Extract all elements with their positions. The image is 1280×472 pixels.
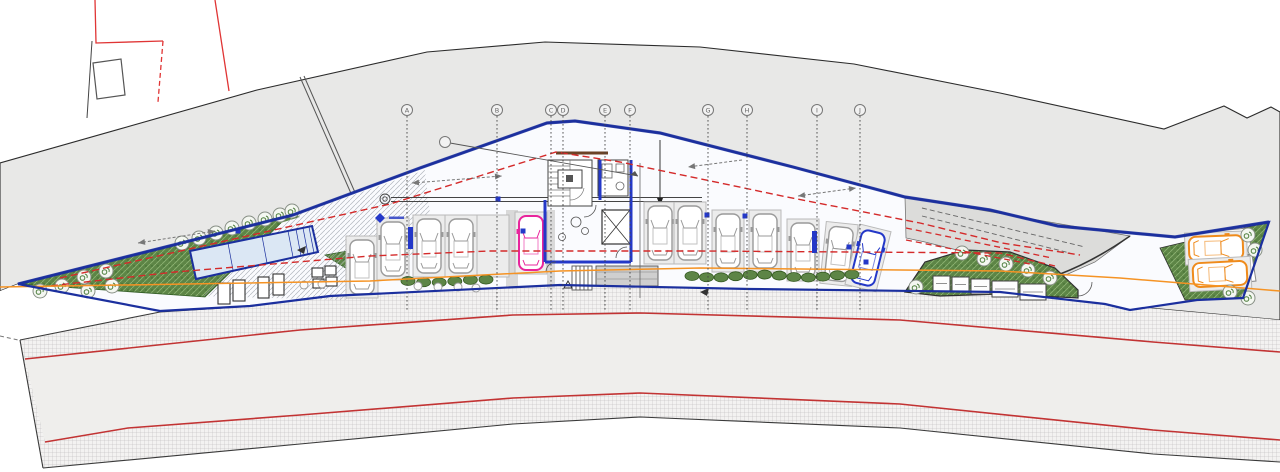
car-mirror-left [789,236,792,241]
bush [845,270,859,279]
car-mirror-right [473,232,476,237]
light-well [325,266,336,275]
bush [743,270,757,279]
stair-machine-icon [566,175,573,182]
car-mirror-right [702,219,705,224]
bush [685,272,699,281]
car-mirror-left [826,239,830,244]
car-mirror-left [676,219,679,224]
shrub-circle [414,282,422,290]
light-well [312,268,323,277]
car-pink [515,212,547,274]
car-mirror-left [751,227,754,232]
car-gray [712,210,744,272]
car-gray [749,210,781,272]
blue-bar-marker [408,227,413,249]
tree [99,264,113,278]
grid-bubble-label: J [858,106,861,114]
car-body [519,216,543,270]
parking-stall-empty [477,215,509,277]
blue-square-marker [864,260,869,265]
car-body [449,219,473,273]
car-body [753,214,777,268]
tree [1241,228,1255,242]
blue-square-marker [847,245,852,250]
car-mirror-left [447,232,450,237]
car-body [417,219,441,273]
bush [801,273,815,282]
leader-tag-bubble [440,137,451,148]
bush [772,271,786,280]
car-mirror-left [517,229,520,234]
car-gray [346,236,378,298]
car-mirror-right [441,232,444,237]
car-mirror-left [1228,259,1233,262]
car-mirror-left [379,235,382,240]
site-plan-drawing: ABCDEFGHIJ [0,0,1280,472]
blue-square-marker [521,229,526,234]
grid-bubble-label: I [816,106,818,114]
car-mirror-left [646,219,649,224]
bush [787,272,801,281]
car-body [648,206,672,260]
parcel-line-west [95,0,163,43]
bush [729,272,743,281]
bush [816,272,830,281]
bush [758,270,772,279]
road-layer [20,285,1280,468]
car-body [716,214,740,268]
grid-bubble-label: B [495,106,499,114]
car-gray [413,215,445,277]
parcel-line-dashed [158,41,163,102]
car-mirror-left [1224,233,1229,236]
car-gray [674,202,706,264]
light-well [258,277,269,298]
parcel-black-line [87,41,92,118]
bush [714,273,728,282]
grid-bubble-label: H [745,106,750,114]
grid-bubble-label: C [549,106,554,114]
car-body [1192,261,1247,288]
car-body [678,206,702,260]
grid-bubble-label: G [705,106,710,114]
site-plan-page: ABCDEFGHIJ [0,0,1280,472]
car-body [350,240,374,294]
blue-square-marker [496,197,501,202]
blue-square-marker [705,213,710,218]
bush [830,271,844,280]
car-body [381,222,405,276]
bush [479,275,493,284]
bush [700,273,714,282]
parcel-line-east [215,0,229,91]
existing-building-outline [93,59,125,99]
car-gray [644,202,676,264]
grid-bubble-label: E [603,106,607,114]
car-mirror-left [714,227,717,232]
grid-bubble-label: A [405,106,410,114]
car-mirror-right [740,227,743,232]
light-well [273,274,284,295]
car-gray [377,218,409,280]
car-mirror-left [415,232,418,237]
car-mirror-right [777,227,780,232]
tree [1021,263,1035,277]
car-gray [445,215,477,277]
grid-bubble-label: F [628,106,632,114]
bush [401,277,415,286]
blue-bar-marker [812,231,817,253]
light-well [218,283,230,304]
grid-bubble-label: D [560,106,565,114]
